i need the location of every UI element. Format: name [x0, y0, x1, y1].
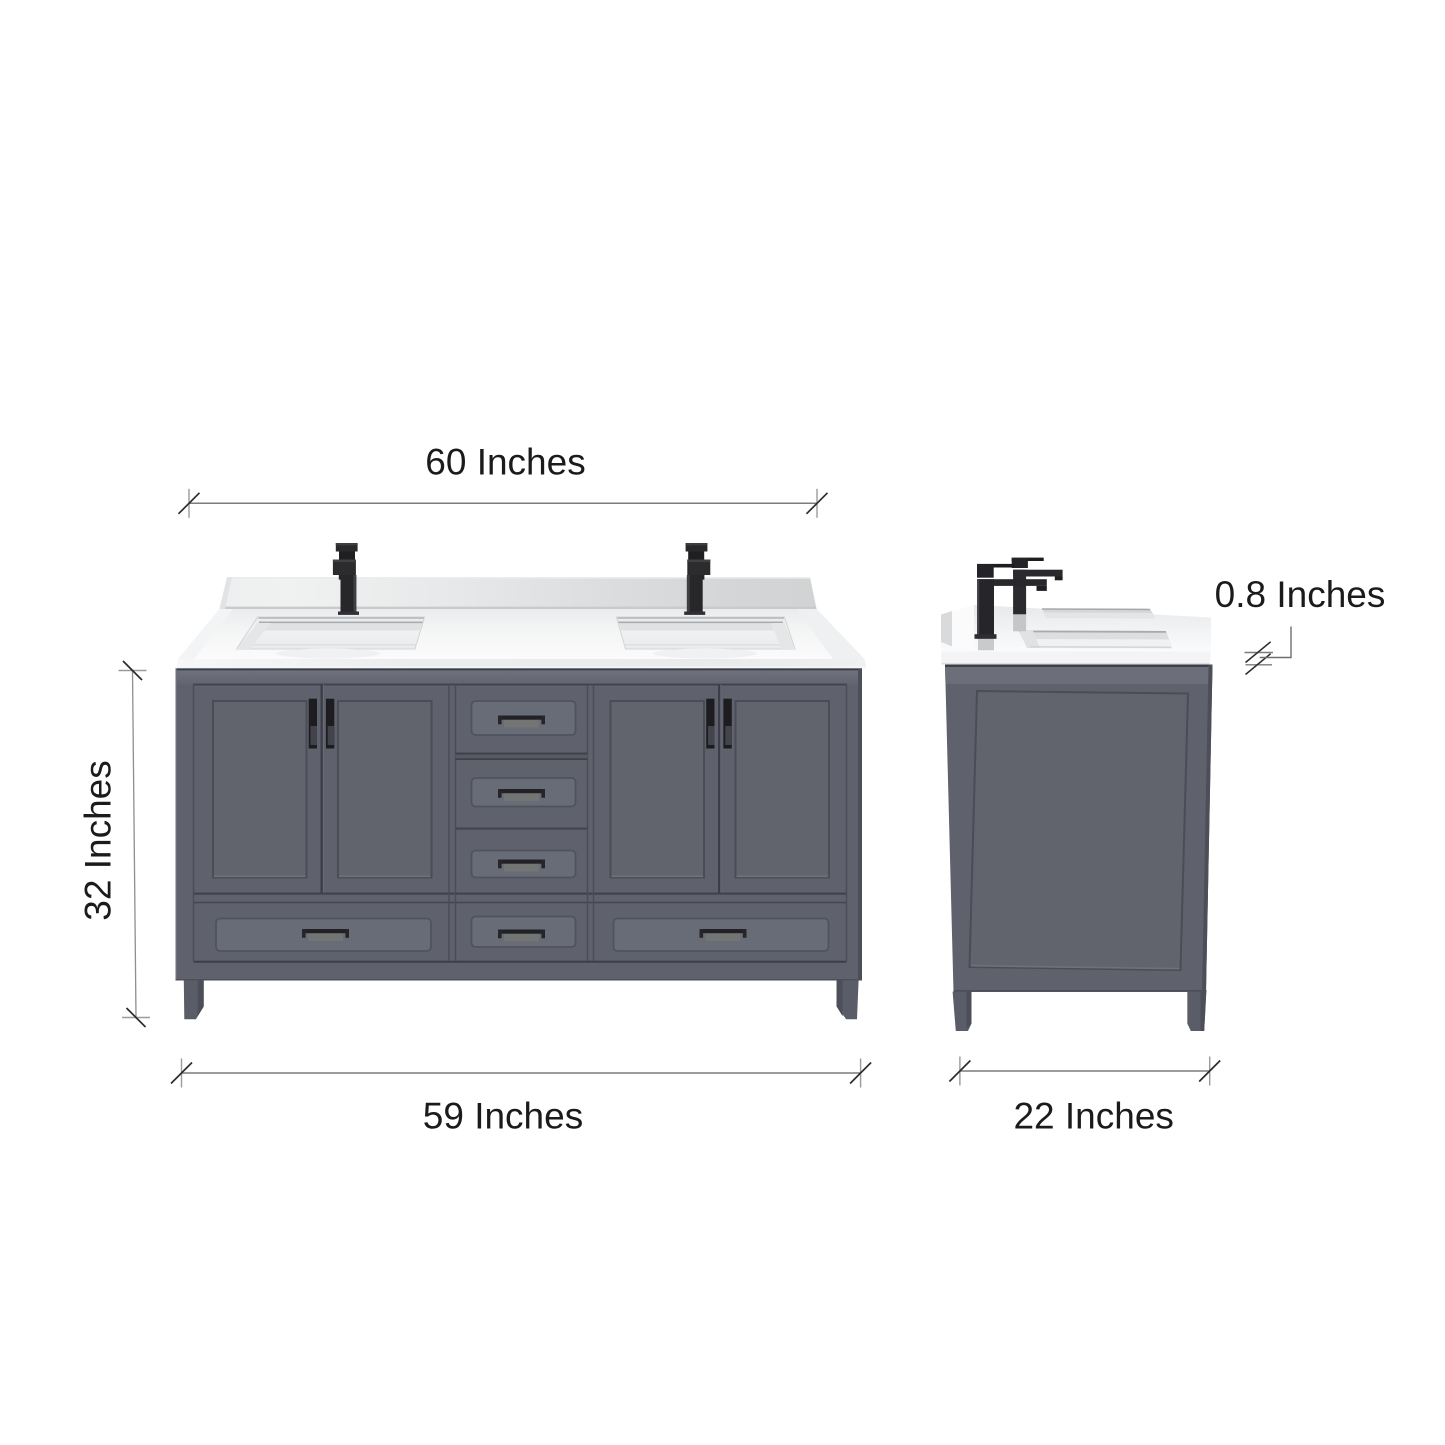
svg-text:32 Inches: 32 Inches: [78, 760, 119, 920]
svg-text:59 Inches: 59 Inches: [423, 1096, 583, 1137]
svg-text:0.8 Inches: 0.8 Inches: [1215, 574, 1386, 615]
svg-text:60 Inches: 60 Inches: [425, 442, 585, 483]
svg-text:22 Inches: 22 Inches: [1013, 1095, 1173, 1136]
